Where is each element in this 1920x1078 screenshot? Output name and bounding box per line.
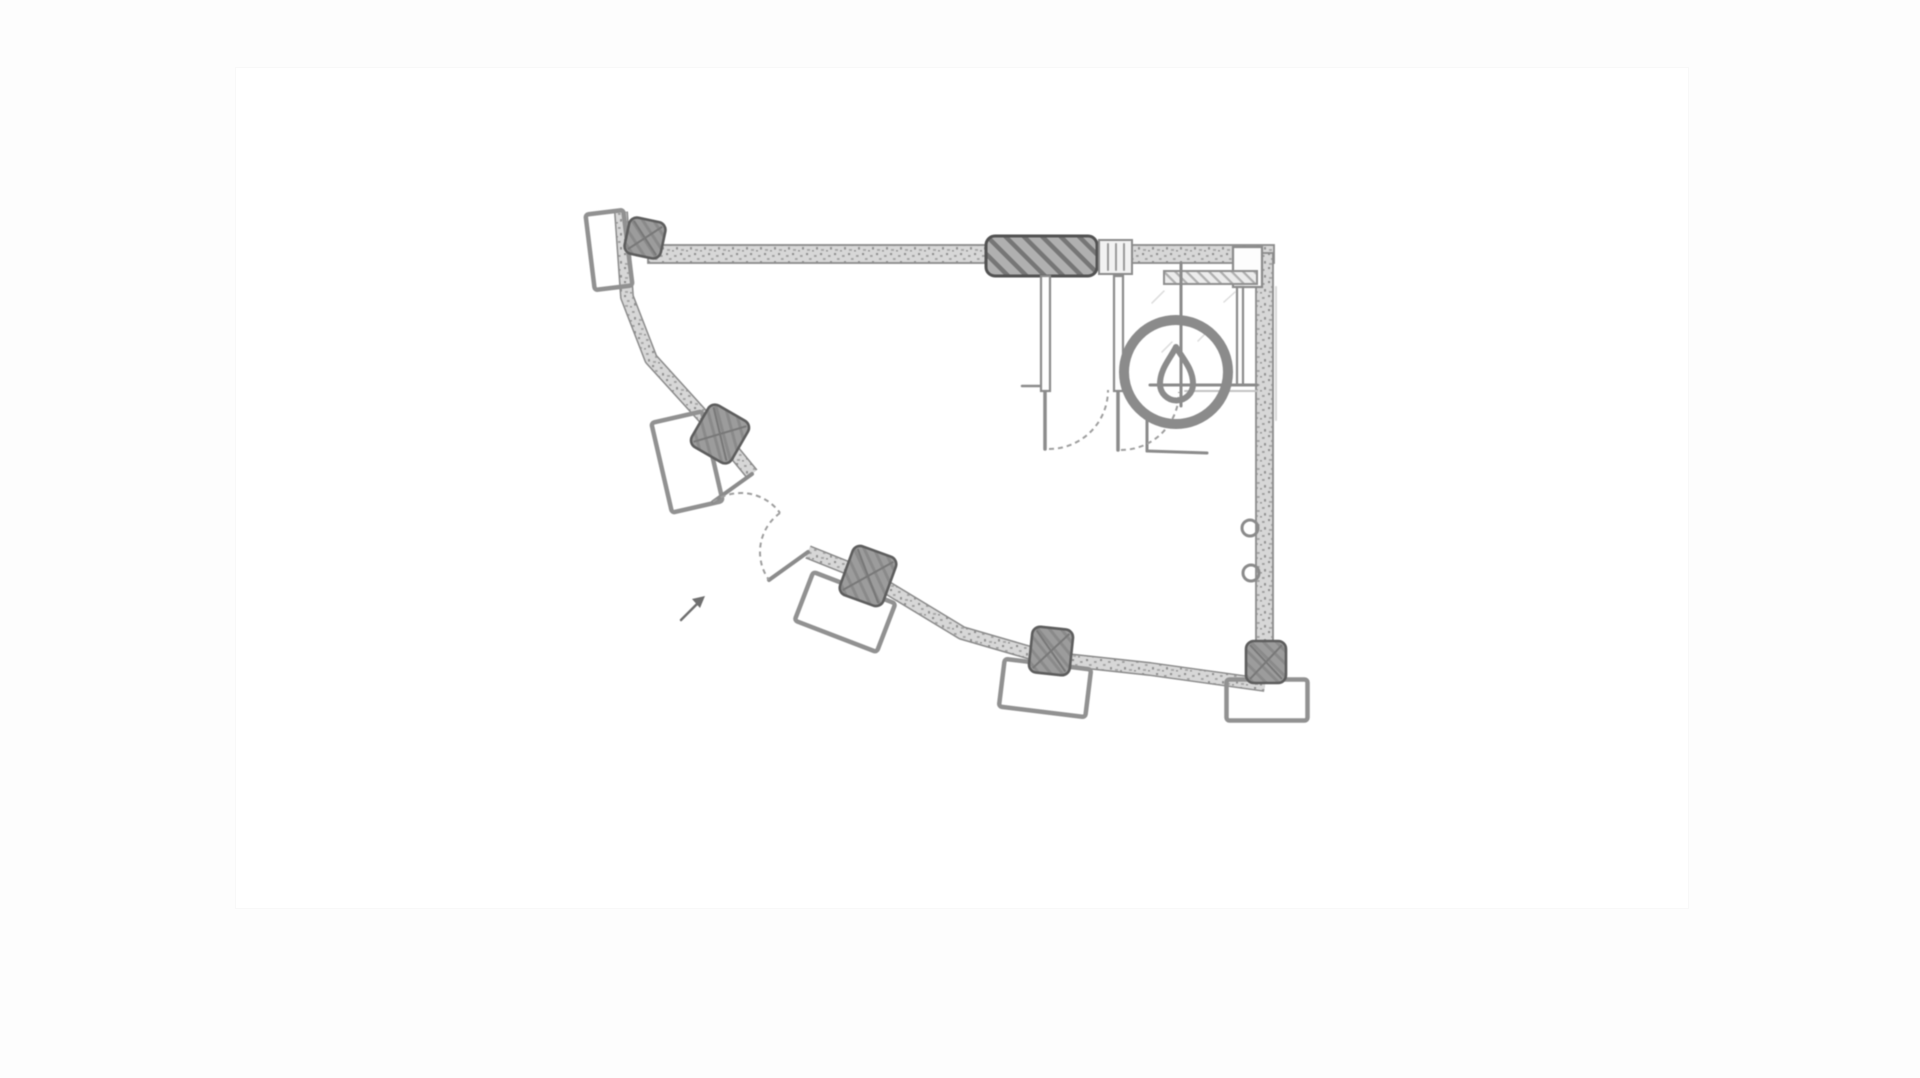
cursor-tail [681, 602, 699, 620]
column-4 [1028, 626, 1074, 676]
door-leaf-ext-2 [769, 552, 808, 580]
stall-bottom [1147, 451, 1207, 453]
floorplan-drawing[interactable] [236, 68, 1688, 908]
floorplan-shapes [586, 210, 1308, 721]
wall-shelf [1164, 271, 1257, 284]
room-hatch-3 [1162, 342, 1172, 352]
canvas-grid[interactable] [0, 0, 1920, 1078]
column-1 [623, 216, 667, 260]
room-hatch-4 [1224, 292, 1235, 302]
door-swing-ext-2 [760, 513, 780, 580]
column-3 [837, 544, 898, 609]
door-swing-int-1 [1049, 390, 1108, 449]
water-drop-icon [1160, 347, 1193, 401]
hatched-lintel [986, 236, 1097, 276]
partition-stub-1 [1041, 276, 1050, 391]
partition-b [1237, 287, 1243, 385]
door-swing-ext-1 [713, 493, 780, 513]
top-wall-left [648, 245, 988, 263]
room-hatch-1 [1152, 291, 1164, 303]
column-5 [1246, 641, 1286, 683]
right-wall [1256, 253, 1273, 648]
